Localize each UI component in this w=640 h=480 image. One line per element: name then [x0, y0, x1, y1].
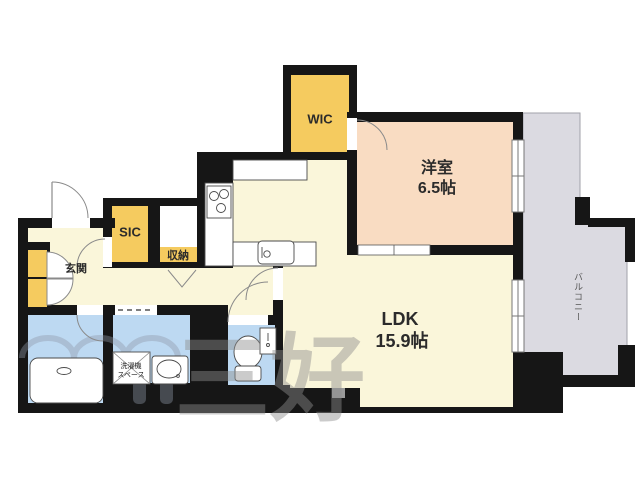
wall — [148, 206, 160, 262]
balcony-area — [523, 113, 627, 377]
wall — [103, 198, 203, 206]
wall — [283, 65, 357, 75]
wall — [563, 375, 635, 387]
shoe-cabinet-lower — [28, 279, 47, 307]
floor-plan: WIC SIC 収納 玄関 洋室 6.5帖 LDK 15.9帖 バルコニー 洗濯… — [0, 0, 640, 480]
wic-door-gap — [347, 118, 357, 150]
wall — [18, 305, 77, 315]
wall — [283, 152, 357, 160]
storage-label: 収納 — [167, 248, 189, 262]
washroom-sliding-door — [115, 305, 157, 315]
watermark-text: 三好 — [175, 327, 365, 433]
wall — [575, 197, 590, 225]
balcony-label: バルコニー — [573, 272, 583, 322]
wall — [197, 183, 205, 268]
shoe-cabinet-upper — [28, 250, 47, 277]
wall — [197, 152, 233, 183]
kitchen-sink-icon — [258, 241, 294, 264]
balcony-floor — [523, 113, 627, 377]
sic-label: SIC — [119, 224, 141, 239]
bathtub-icon — [30, 358, 103, 403]
ldk-name: LDK — [382, 309, 419, 329]
western-room-size: 6.5帖 — [418, 178, 456, 197]
wall — [360, 407, 523, 413]
stove-icon — [207, 186, 231, 218]
wic-label: WIC — [307, 111, 333, 126]
western-room-window — [512, 140, 524, 212]
front-door-gap — [52, 218, 90, 228]
hall-ldk-door-gap — [273, 268, 283, 300]
wall — [283, 65, 291, 160]
laundry-label-line2: スペース — [117, 371, 144, 379]
wall — [347, 112, 523, 122]
laundry-label-line1: 洗濯機 — [121, 361, 142, 370]
toilet-door-gap — [228, 315, 268, 325]
front-door-arc — [52, 182, 88, 218]
wall — [625, 218, 635, 262]
ldk-floor-south — [360, 388, 513, 407]
wall — [103, 305, 113, 413]
ldk-size: 15.9帖 — [375, 330, 428, 351]
western-room-sliding-door — [358, 245, 430, 255]
entrance-hall-door-gap — [103, 237, 112, 267]
floor-plan-root: WIC SIC 収納 玄関 洋室 6.5帖 LDK 15.9帖 バルコニー 洗濯… — [0, 0, 640, 480]
kitchen-counter-top — [233, 160, 307, 180]
storage-floor — [160, 206, 197, 247]
western-room-name: 洋室 — [421, 158, 453, 177]
hallway-floor-toilet-side — [228, 268, 273, 315]
ldk-window — [512, 280, 524, 352]
bathroom-door-gap — [77, 305, 103, 315]
wall — [513, 352, 563, 413]
entrance-label: 玄関 — [65, 261, 87, 275]
